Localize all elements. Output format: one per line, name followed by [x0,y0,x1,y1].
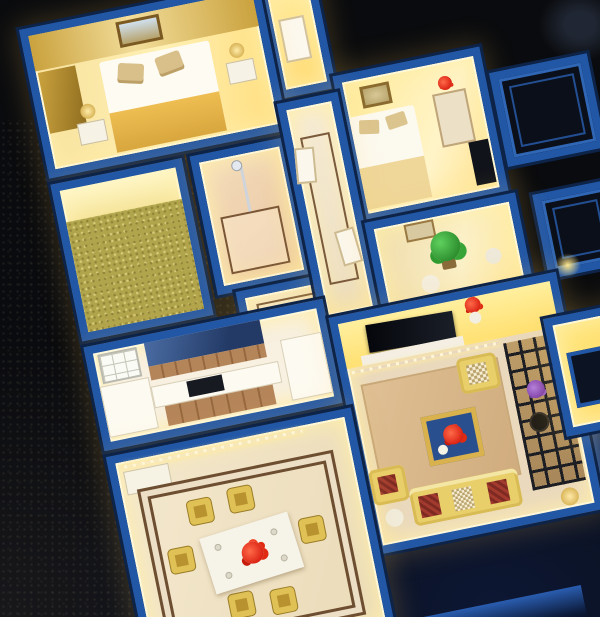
place-setting [280,554,289,563]
checkered-cushion [466,362,490,386]
white-vase [468,311,482,325]
shower-column [239,166,251,212]
patterned-cushion [377,474,398,495]
place-setting [214,543,223,552]
white-dish [437,444,449,456]
tv-panel [468,139,496,186]
patterned-cushion [486,479,510,505]
balcony-window-upper [489,53,600,167]
foyer-door [278,15,312,63]
dresser [432,88,476,148]
pillow [359,120,379,135]
floor-inlay [220,206,290,275]
textured-carpet [66,199,204,332]
balcony-window-lower [532,179,600,279]
bed-blanket [359,156,432,210]
door-panel [294,147,317,185]
table-lamp [228,42,246,60]
red-flower-centerpiece [239,539,267,567]
dining-chair [168,546,196,574]
dark-round-table [528,410,552,434]
dining-chair [228,591,256,617]
dark-window [566,344,600,408]
side-table [384,507,405,528]
pillow [385,111,408,131]
place-setting [225,571,234,580]
red-flowers [437,75,454,92]
dining-chair [270,586,298,614]
dining-chair [186,497,214,525]
wall-art [359,81,393,109]
purple-flowers [525,378,546,399]
red-flowers [441,423,465,447]
round-table [484,246,503,265]
nightstand [226,58,258,85]
dining-chair [227,485,255,513]
place-setting [270,527,279,536]
pillow [154,50,185,78]
master-bed [99,40,227,152]
light-spill [553,251,583,280]
patterned-cushion [418,493,442,519]
side-table [559,486,580,507]
dining-chair [298,515,326,543]
nightstand [77,119,109,146]
counter [280,332,334,401]
white-pouf [420,273,441,294]
armchair [368,464,410,506]
pillow [117,63,144,84]
bed-blanket [109,91,227,153]
photo-canvas [0,0,600,617]
checkered-cushion [451,486,475,512]
bed [349,105,432,210]
